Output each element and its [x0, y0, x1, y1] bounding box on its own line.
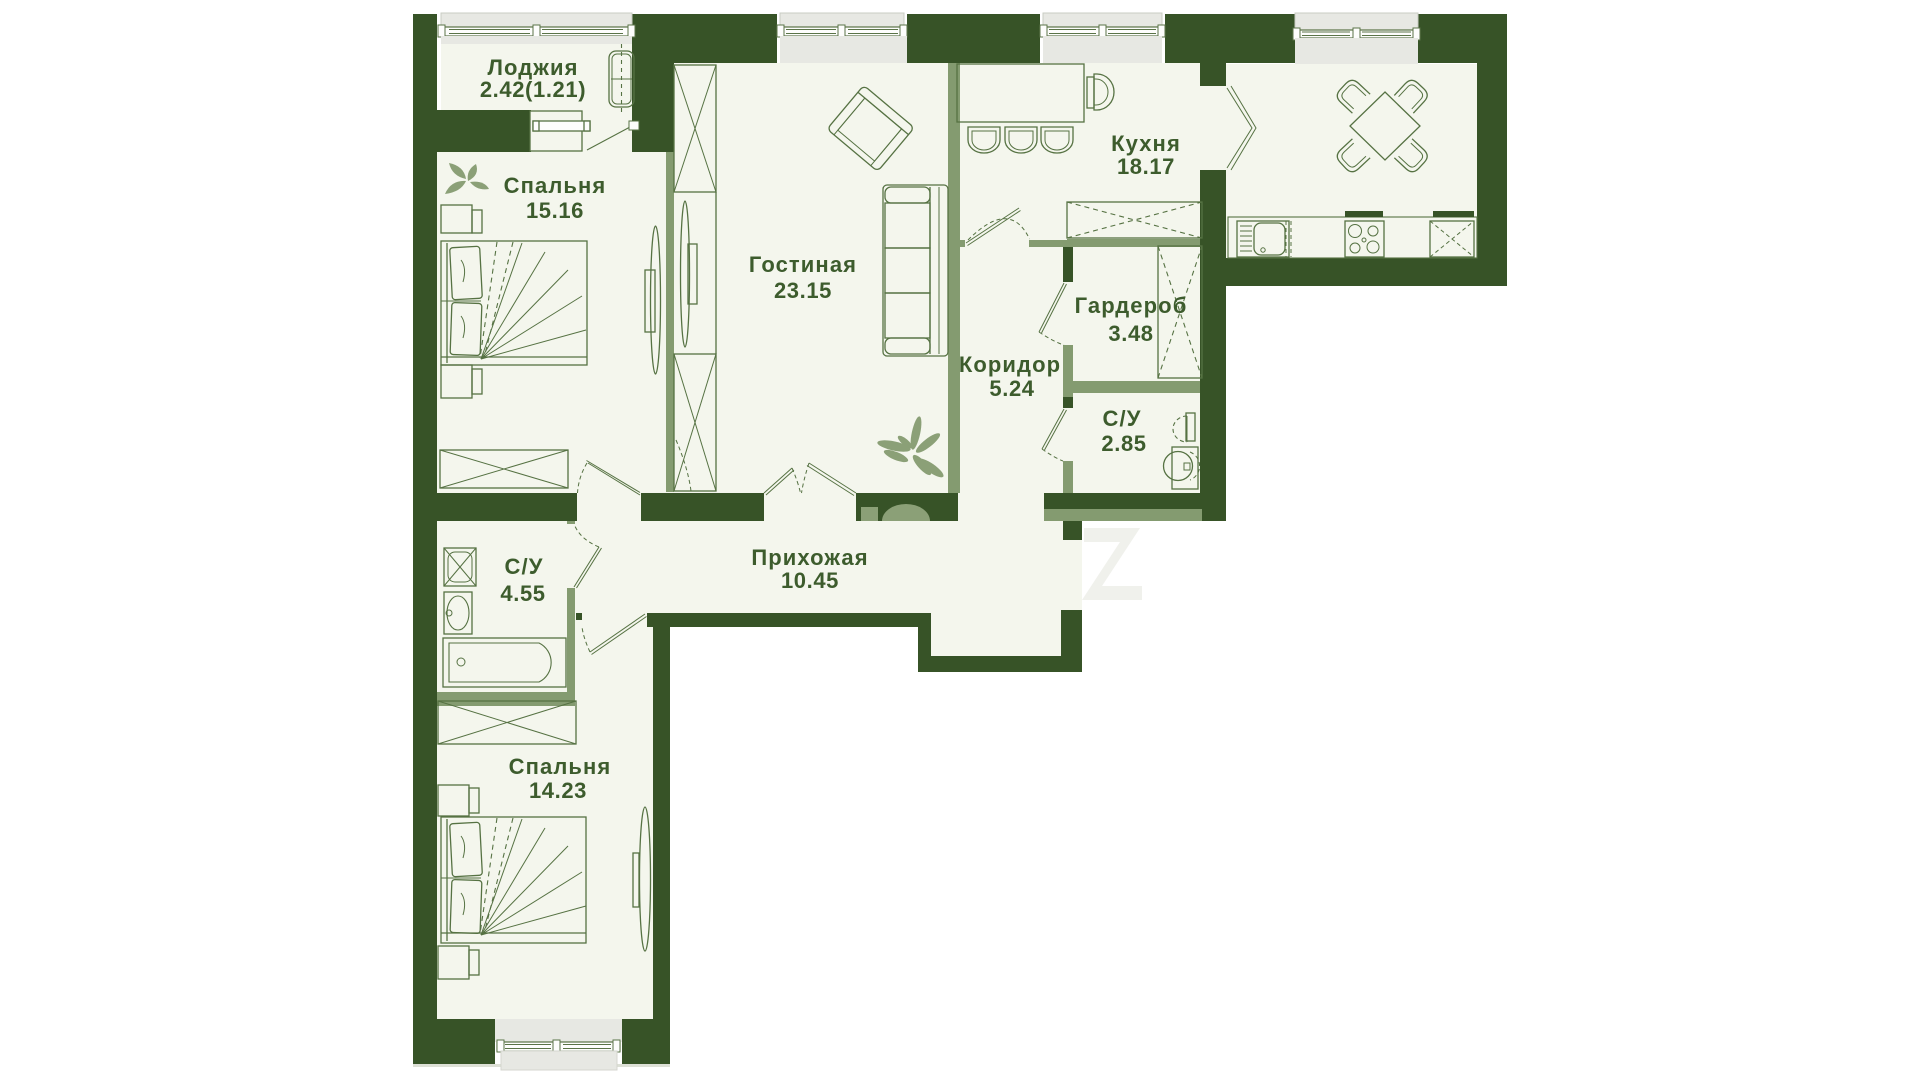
svg-text:4.55: 4.55: [500, 581, 545, 606]
svg-text:23.15: 23.15: [774, 278, 832, 303]
svg-text:С/У: С/У: [1103, 406, 1142, 431]
svg-text:Кухня: Кухня: [1111, 131, 1181, 156]
svg-text:Спальня: Спальня: [504, 173, 607, 198]
svg-text:Гардероб: Гардероб: [1075, 293, 1188, 318]
svg-text:Прихожая: Прихожая: [751, 545, 868, 570]
svg-text:15.16: 15.16: [526, 198, 584, 223]
svg-text:2.42(1.21): 2.42(1.21): [480, 77, 586, 102]
svg-text:14.23: 14.23: [529, 778, 587, 803]
svg-text:10.45: 10.45: [781, 568, 839, 593]
svg-text:Коридор: Коридор: [959, 352, 1061, 377]
svg-text:2.85: 2.85: [1101, 431, 1146, 456]
svg-text:5.24: 5.24: [989, 376, 1034, 401]
svg-text:3.48: 3.48: [1108, 321, 1153, 346]
svg-text:18.17: 18.17: [1117, 154, 1175, 179]
svg-text:Гостиная: Гостиная: [749, 252, 857, 277]
svg-text:С/У: С/У: [505, 554, 544, 579]
svg-text:Спальня: Спальня: [509, 754, 612, 779]
